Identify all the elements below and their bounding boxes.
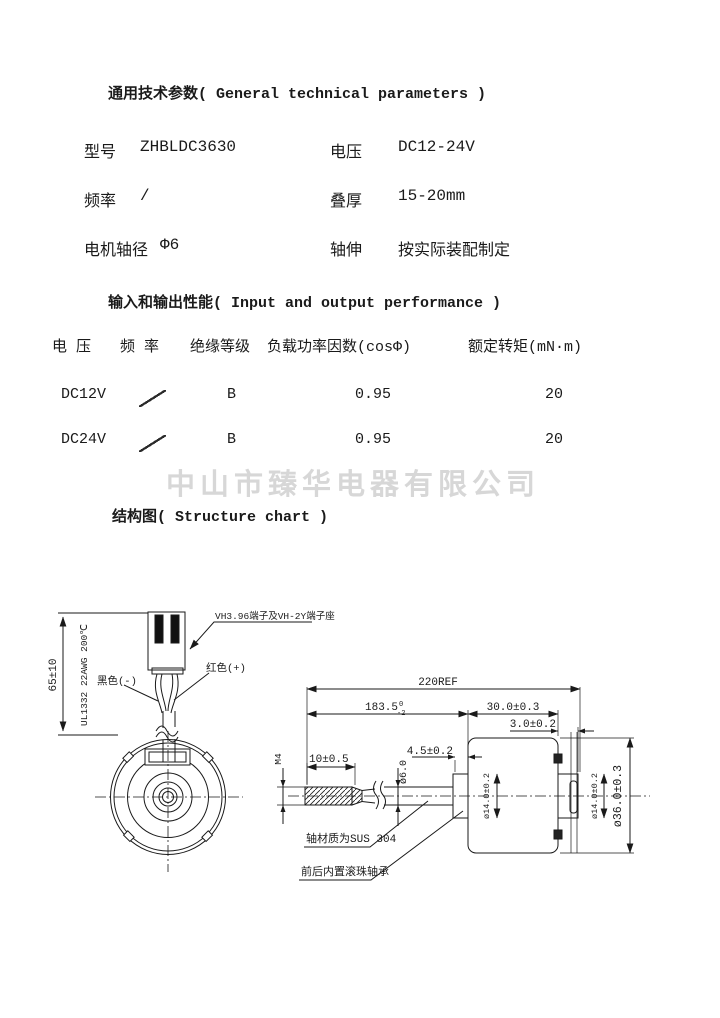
mounting-tab-top [554, 754, 562, 763]
shaft-length-tol-lower: -2 [397, 710, 405, 718]
param-value-stack: 15-20mm [398, 187, 465, 205]
thread-length-dim: 10±0.5 [309, 754, 349, 766]
connector [148, 612, 185, 674]
param-label-extension: 轴伸 [330, 236, 362, 260]
row-dc24v-torque: 20 [545, 431, 563, 448]
wire-length-dim: 65±10 [48, 658, 60, 691]
param-value-extension: 按实际装配制定 [398, 236, 510, 260]
wire-length-dimension [58, 613, 148, 735]
col-header-torque: 额定转矩(mN·m) [468, 335, 582, 356]
param-label-voltage: 电压 [330, 138, 362, 162]
lead-wires [155, 674, 178, 761]
black-wire-label: 黑色(-) [97, 674, 137, 688]
overall-length-dim: 220REF [418, 677, 458, 689]
motor-shaft [362, 781, 453, 809]
shaft-length-dim: 183.5 [365, 702, 398, 714]
structure-chart-title: 结构图( Structure chart ) [112, 505, 328, 526]
body-length-dim: 30.0±0.3 [487, 702, 540, 714]
bearing-note: 前后内置滚珠轴承 [301, 864, 389, 879]
dimension-lines [277, 687, 634, 853]
param-value-model: ZHBLDC3630 [140, 138, 236, 156]
company-watermark: 中山市臻华电器有限公司 [166, 461, 540, 503]
param-value-frequency: / [140, 187, 150, 205]
front-boss-dia-dim: ø14.0±0.2 [482, 773, 492, 819]
spec-sheet-page: 65±10 UL1332 22AWG 200℃ VH3.96端子及VH-2Y端子… [0, 0, 720, 1018]
col-header-power-factor: 负载功率因数(cosΦ) [267, 335, 411, 356]
col-header-frequency: 频 率 [120, 335, 159, 356]
rear-boss-length-dim: 3.0±0.2 [510, 719, 556, 731]
body-dia-dim: ø36.0±0.3 [612, 765, 625, 827]
wire-spec-label: UL1332 22AWG 200℃ [79, 624, 90, 726]
mounting-tab-bottom [554, 830, 562, 839]
connector-terminal-label: VH3.96端子及VH-2Y端子座 [215, 610, 335, 622]
drawing-labels: 65±10 UL1332 22AWG 200℃ VH3.96端子及VH-2Y端子… [48, 610, 625, 879]
row-dc12v-frequency-na [139, 390, 166, 407]
red-wire-label: 红色(+) [206, 661, 246, 675]
param-label-frequency: 频率 [84, 187, 116, 211]
row-dc24v-voltage: DC24V [61, 431, 106, 448]
col-header-insulation: 绝缘等级 [190, 335, 250, 356]
param-label-shaft-dia: 电机轴径 [84, 236, 148, 260]
row-dc12v-insulation: B [227, 386, 236, 403]
motor-front-view [95, 731, 243, 872]
rear-boss-dia-dim: ø14.0±0.2 [590, 773, 600, 819]
shaft-length-tol-upper: 0 [399, 701, 403, 709]
param-value-voltage: DC12-24V [398, 138, 475, 156]
io-performance-title: 输入和输出性能( Input and output performance ) [108, 291, 501, 312]
param-label-model: 型号 [84, 138, 116, 162]
shaft-material-note: 轴材质为SUS 304 [306, 831, 397, 846]
red-wire-leader [174, 673, 209, 700]
shaft-dia-dim: ø6.0 [399, 760, 410, 784]
row-dc12v-voltage: DC12V [61, 386, 106, 403]
row-dc24v-frequency-na [139, 435, 166, 452]
row-dc12v-power-factor: 0.95 [355, 386, 391, 403]
front-boss-length-dim: 4.5±0.2 [407, 746, 453, 758]
general-parameters-title: 通用技术参数( General technical parameters ) [108, 82, 486, 103]
param-value-shaft-dia: Φ6 [160, 236, 179, 254]
row-dc24v-power-factor: 0.95 [355, 431, 391, 448]
param-label-stack: 叠厚 [330, 187, 362, 211]
connector-leader [190, 622, 312, 649]
row-dc12v-torque: 20 [545, 386, 563, 403]
col-header-voltage: 电 压 [52, 335, 91, 356]
row-dc24v-insulation: B [227, 431, 236, 448]
thread-size-dim: M4 [273, 753, 284, 765]
threaded-shaft-end [305, 787, 362, 805]
